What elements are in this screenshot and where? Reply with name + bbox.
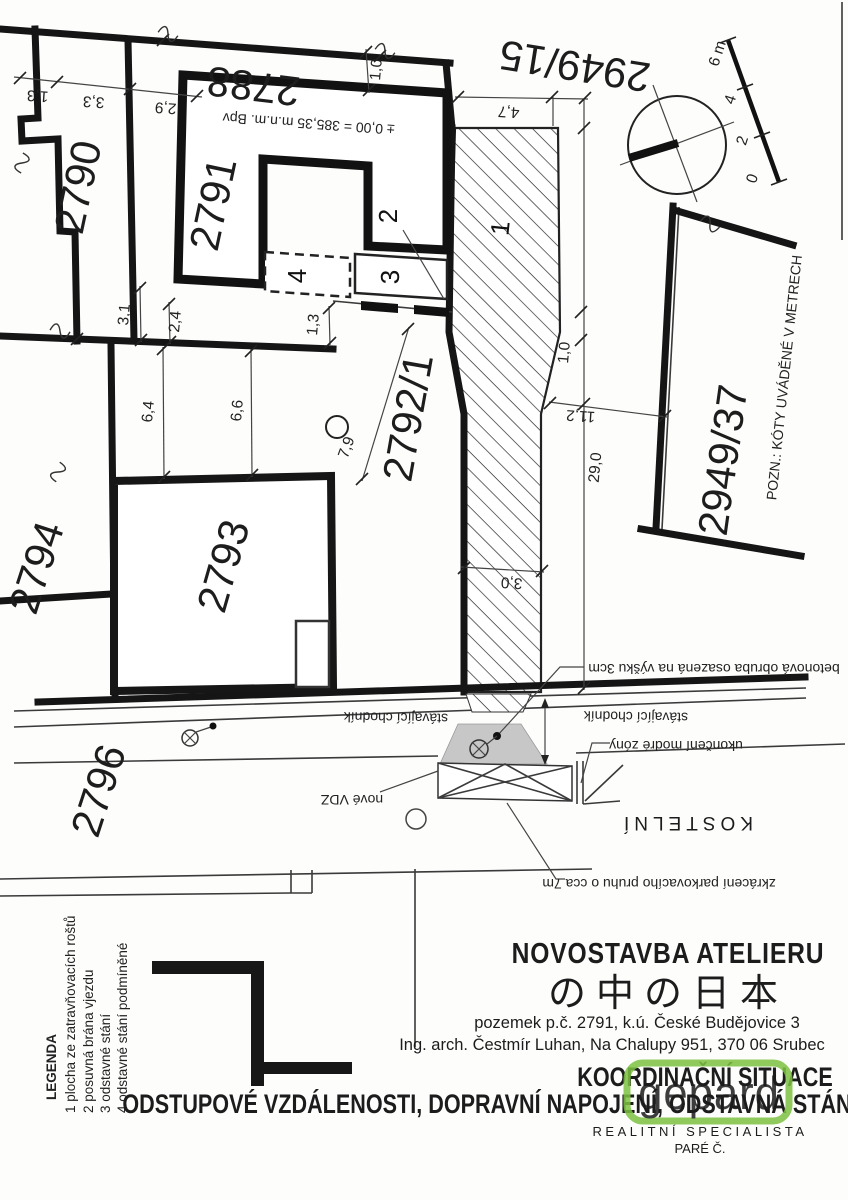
parcel-info: pozemek p.č. 2791, k.ú. České Budějovice… bbox=[474, 1013, 800, 1032]
annotation-new-vdz: nové VDZ bbox=[320, 792, 383, 808]
grass-paver-strip bbox=[449, 128, 560, 712]
parcel-label-2792-1: 2792/1 bbox=[373, 350, 442, 485]
scale-label-6m: 6 m bbox=[706, 39, 730, 69]
legend: LEGENDA 1 plocha ze zatravňovacích roštů… bbox=[44, 916, 130, 1113]
zone-label-4: 4 bbox=[282, 269, 312, 283]
project-title: NOVOSTAVBA ATELIERU bbox=[512, 937, 825, 969]
dim-1-0-right: 1,0 bbox=[555, 341, 574, 364]
gepard-watermark: gepard bbox=[627, 1063, 789, 1121]
driveway-and-road-marking bbox=[438, 724, 623, 804]
north-compass bbox=[620, 85, 734, 202]
dim-1-0-top: 1,0 bbox=[367, 58, 386, 81]
parcel-label-2788: 2788 bbox=[204, 57, 302, 115]
scale-bar bbox=[720, 37, 787, 185]
site-plan-drawing: 2788 2949/15 2790 2791 2792/1 2793 2794 … bbox=[0, 0, 848, 1200]
sliding-gate-bars bbox=[361, 301, 449, 317]
annotation-curb: betonová obruba osazená na výšku 3cm bbox=[588, 661, 839, 677]
legend-item-1: 1 plocha ze zatravňovacích roštů bbox=[63, 916, 78, 1113]
well-symbol bbox=[326, 416, 348, 438]
dim-1-3-top: 1,3 bbox=[26, 86, 49, 104]
gepard-logo-text: gepard bbox=[638, 1067, 780, 1119]
dim-6-6: 6,6 bbox=[228, 399, 247, 422]
gepard-tagline: REALITNÍ SPECIALISTA bbox=[593, 1124, 808, 1139]
street-annotations: betonová obruba osazená na výšku 3cm stá… bbox=[320, 661, 839, 892]
legend-title: LEGENDA bbox=[44, 1034, 59, 1100]
frame-corner-mark bbox=[152, 961, 352, 1086]
driveway-trapezoid bbox=[440, 724, 547, 764]
dim-29-0: 29,0 bbox=[586, 451, 606, 483]
scale-label-4: 4 bbox=[721, 93, 740, 107]
street-circle-symbol bbox=[406, 809, 426, 829]
project-title-japanese: の中の日本 bbox=[548, 971, 788, 1015]
dim-2-4: 2,4 bbox=[166, 310, 185, 333]
dim-3-3: 3,3 bbox=[82, 92, 105, 110]
annotation-blue-zone: ukončení modré zóny bbox=[609, 738, 743, 754]
parcel-label-2949-37: 2949/37 bbox=[689, 382, 757, 539]
annotation-sidewalk-right: stávající chodník bbox=[583, 708, 689, 726]
vdz-road-marking bbox=[438, 763, 572, 801]
dim-6-4: 6,4 bbox=[139, 400, 158, 423]
zone-label-2: 2 bbox=[373, 209, 403, 223]
zone-label-3: 3 bbox=[375, 270, 405, 284]
dim-1-3-gate: 1,3 bbox=[304, 313, 323, 336]
blue-zone-end-bracket bbox=[577, 761, 623, 804]
dim-11-2: 11,2 bbox=[566, 406, 596, 425]
dim-4-7: 4,7 bbox=[497, 102, 520, 120]
parcel-label-2949-15: 2949/15 bbox=[496, 31, 653, 101]
lamp-symbol bbox=[182, 723, 217, 747]
annotation-parking-lane: zkrácení parkovacího pruhu o cca 7m bbox=[542, 876, 775, 892]
dim-3-0: 3,0 bbox=[500, 573, 523, 591]
architect-info: Ing. arch. Čestmír Luhan, Na Chalupy 951… bbox=[399, 1035, 825, 1054]
parcel-label-2794: 2794 bbox=[0, 516, 73, 619]
dim-3-1: 3,1 bbox=[115, 303, 134, 326]
legend-item-4: 4 odstavné stání podmíněné bbox=[115, 943, 130, 1113]
parcel-label-2796: 2796 bbox=[61, 739, 135, 842]
legend-item-2: 2 posuvná brána vjezdu bbox=[81, 970, 96, 1113]
dim-2-9: 2,9 bbox=[154, 98, 177, 116]
street-name-kostelni: KOSTELNÍ bbox=[619, 812, 753, 833]
scale-label-2: 2 bbox=[733, 134, 752, 147]
legend-item-3: 3 odstavné stání bbox=[98, 1014, 113, 1113]
note-units: POZN.: KÓTY UVÁDĚNÉ V METRECH bbox=[763, 254, 805, 501]
annotation-sidewalk-left: stávající chodník bbox=[343, 709, 449, 727]
scale-label-0: 0 bbox=[743, 172, 762, 186]
pare-number-label: PARÉ Č. bbox=[674, 1141, 725, 1156]
site-plan-page: 2788 2949/15 2790 2791 2792/1 2793 2794 … bbox=[0, 0, 848, 1200]
